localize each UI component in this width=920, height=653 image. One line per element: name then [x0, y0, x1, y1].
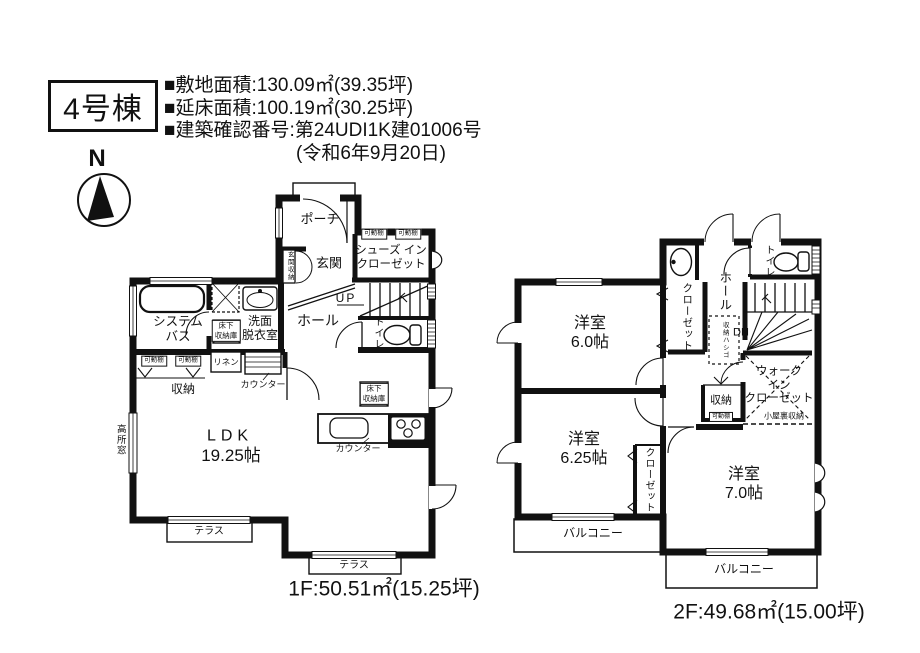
label-movable-shelf: 可動棚 — [395, 229, 421, 240]
compass-icon — [78, 174, 130, 226]
label-movable-shelf: 可動棚 — [361, 229, 387, 240]
confirmation-number-text: ■建築確認番号:第24UDI1K建01006号 — [164, 120, 482, 143]
counter-hatch — [245, 352, 281, 374]
label-entrance-storage: 玄関収納 — [286, 251, 293, 281]
room-label-hall-2f: ホール — [718, 271, 731, 312]
label-counter: カウンター — [335, 444, 380, 455]
room-label-6-25: 洋室 6.25帖 — [560, 431, 607, 469]
label-underfloor-storage: 床下 収納庫 — [212, 320, 241, 342]
floor1-linework — [129, 183, 456, 574]
washbasin-1f — [243, 287, 277, 310]
label-down: DN — [733, 327, 749, 340]
label-storage-ladder: 収納ハシゴ — [721, 321, 728, 359]
label-storage-2f: 収納 — [710, 395, 732, 408]
label-terrace: テラス — [194, 526, 224, 538]
room-label-7-0: 洋室 7.0帖 — [725, 466, 763, 504]
room-label-ldk: LDK — [207, 428, 253, 447]
room-label-entrance: 玄関 — [316, 255, 342, 270]
room-label-shoes-closet: シューズ イン クローゼット — [355, 244, 427, 271]
label-high-window: 高所窓 — [115, 424, 125, 456]
washbasin-2f — [671, 249, 692, 276]
label-balcony: バルコニー — [714, 562, 774, 576]
floor1-caption: 1F:50.51㎡(15.25坪) — [288, 578, 479, 603]
room-label-walk-in-closet: ウォーク イン クローゼット — [745, 366, 814, 407]
label-storage-1f: 収納 — [171, 382, 195, 396]
confirmation-date-text: (令和6年9月20日) — [164, 143, 482, 166]
property-info: ■敷地面積:130.09㎡(39.35坪) ■延床面積:100.19㎡(30.2… — [164, 75, 482, 165]
room-label-6-0: 洋室 6.0帖 — [571, 315, 609, 353]
label-movable-shelf: 可動棚 — [175, 356, 201, 367]
room-size-ldk: 19.25帖 — [201, 446, 261, 466]
toilet-fixture-2f — [774, 252, 809, 271]
bathtub — [140, 286, 204, 312]
label-up: UP — [336, 291, 357, 305]
floor2-caption: 2F:49.68㎡(15.00坪) — [673, 601, 864, 626]
label-attic-storage: 小屋裏収納 — [764, 411, 804, 420]
label-closet: クローゼット — [682, 283, 693, 352]
label-linen: リネン — [213, 357, 239, 367]
room-label-washroom: 洗面 脱衣室 — [242, 314, 278, 342]
toilet-fixture-1f — [384, 325, 421, 345]
site-area-text: ■敷地面積:130.09㎡(39.35坪) — [164, 75, 482, 98]
north-label: N — [88, 145, 105, 173]
floor-area-text: ■延床面積:100.19㎡(30.25坪) — [164, 98, 482, 121]
label-balcony: バルコニー — [563, 526, 623, 540]
label-underfloor-storage: 床下 収納庫 — [360, 383, 389, 405]
room-label-toilet-2f: トイレ — [763, 245, 773, 278]
label-terrace: テラス — [339, 560, 369, 572]
floorplan-canvas: 4号棟 ■敷地面積:130.09㎡(39.35坪) ■延床面積:100.19㎡(… — [0, 0, 920, 653]
label-counter: カウンター — [240, 380, 285, 391]
label-movable-shelf: 可動棚 — [709, 412, 733, 422]
room-label-toilet-1f: トイレ — [372, 317, 382, 350]
label-closet: クローゼット — [643, 447, 653, 513]
label-movable-shelf: 可動棚 — [141, 356, 167, 367]
kitchen-counter — [318, 414, 428, 443]
room-label-porch: ポーチ — [300, 211, 339, 226]
building-number-label: 4号棟 — [63, 84, 143, 128]
building-number-badge: 4号棟 — [48, 80, 158, 132]
room-label-hall-1f: ホール — [297, 313, 339, 330]
room-label-system-bath: システム バス — [153, 314, 203, 344]
